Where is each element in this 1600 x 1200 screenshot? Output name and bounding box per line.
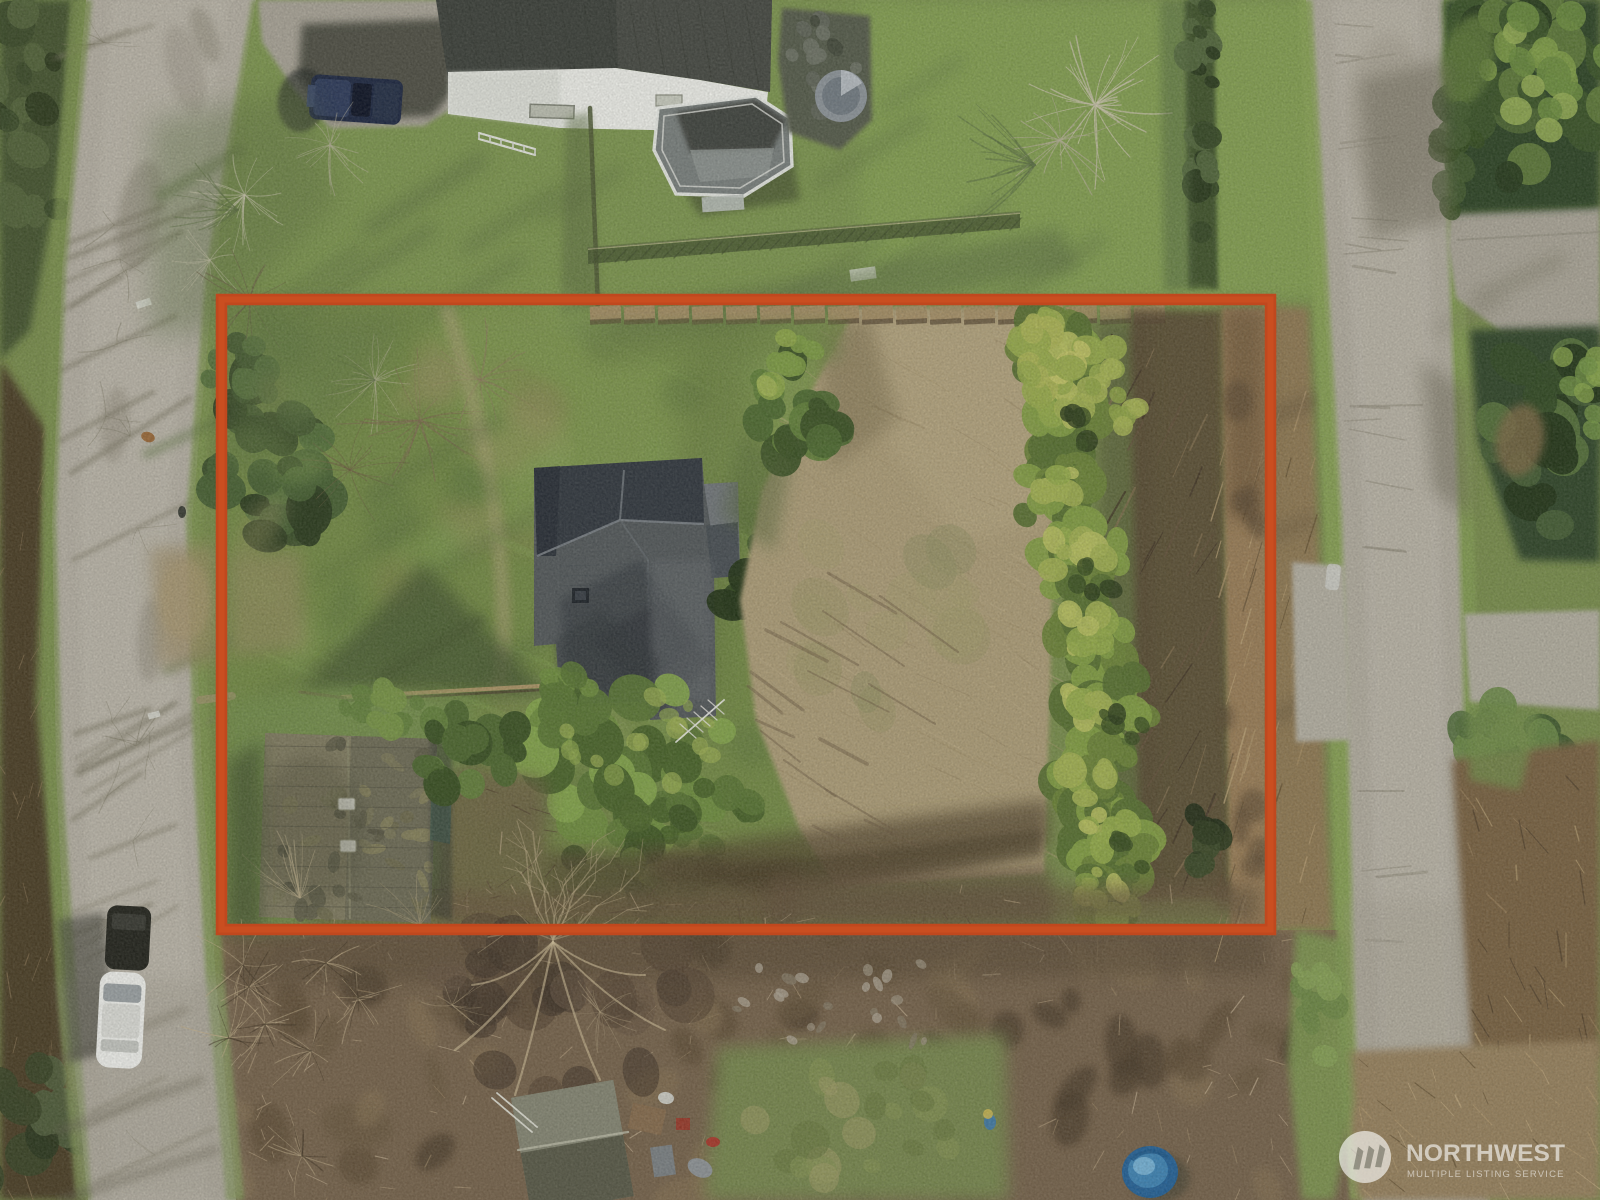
svg-text:NORTHWEST: NORTHWEST [1406,1140,1566,1167]
svg-text:MULTIPLE LISTING SERVICE: MULTIPLE LISTING SERVICE [1407,1169,1565,1180]
